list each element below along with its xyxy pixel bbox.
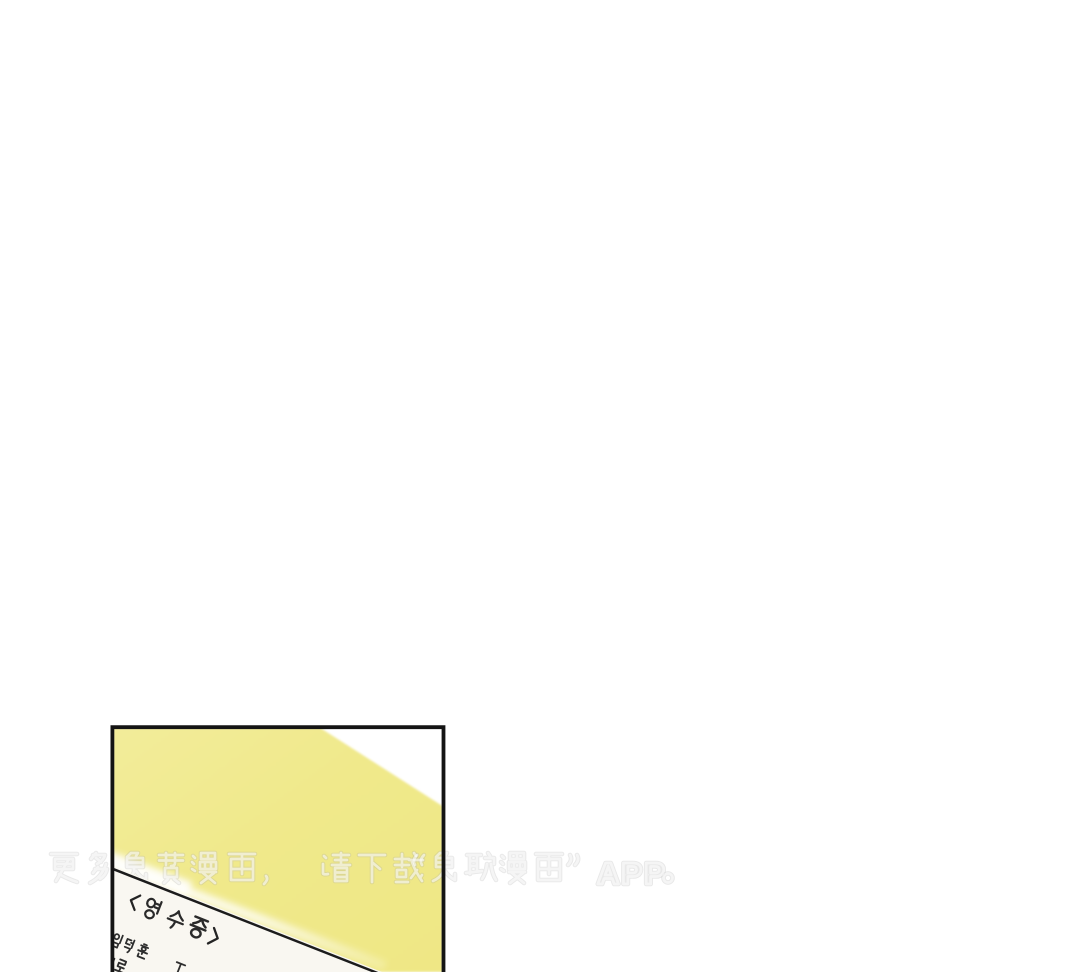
- svg-text:APP: APP: [597, 856, 667, 891]
